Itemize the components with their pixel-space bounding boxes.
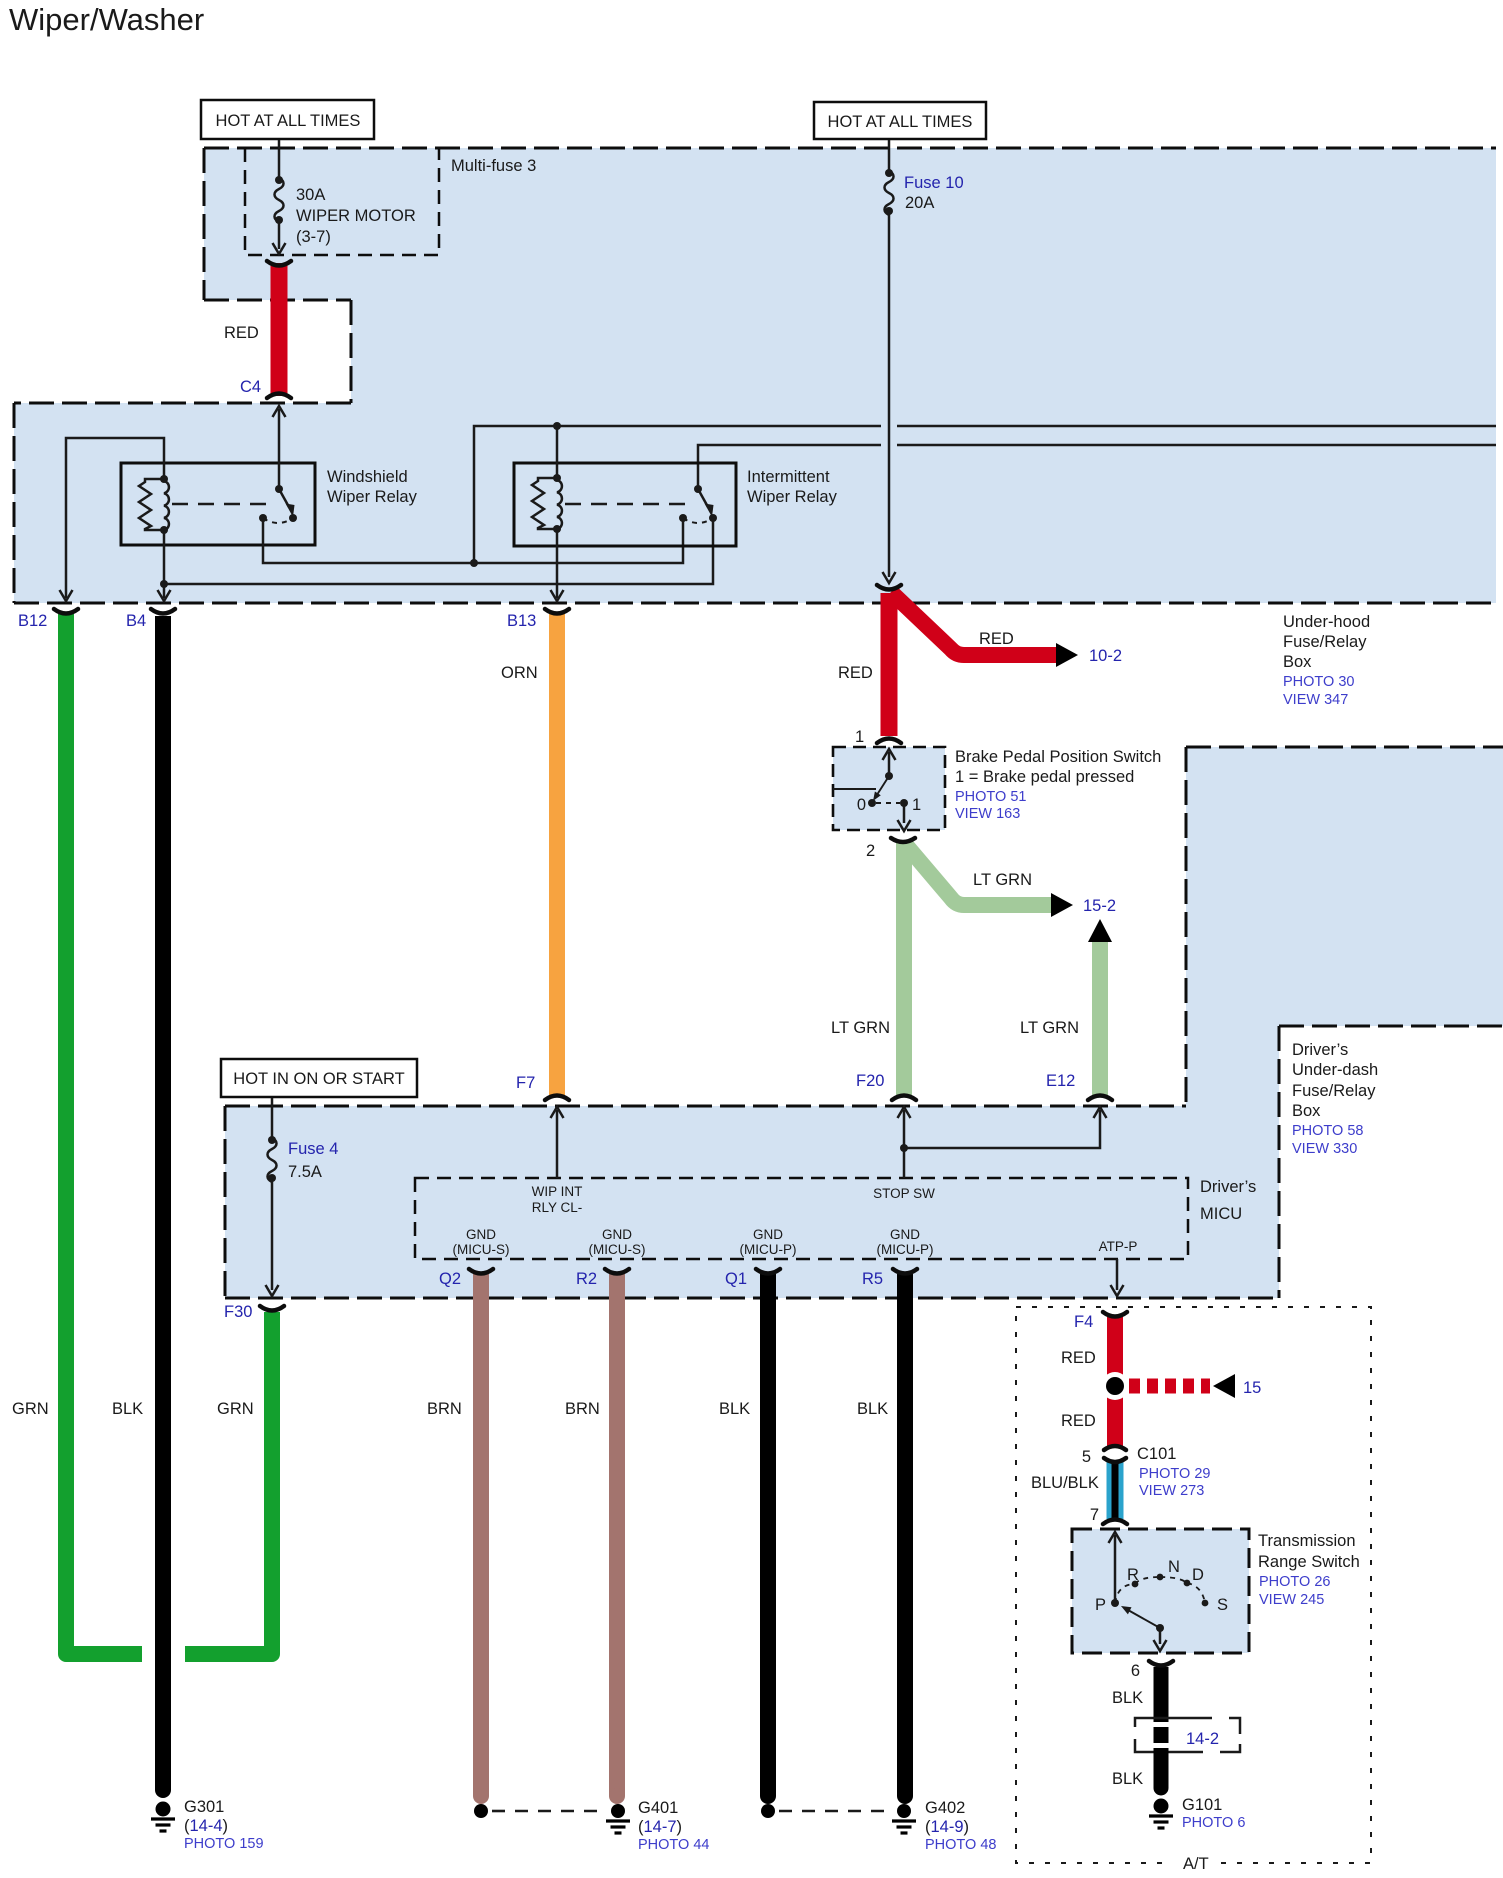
- svg-text:B4: B4: [126, 612, 146, 630]
- svg-text:R2: R2: [576, 1270, 597, 1288]
- svg-text:GND: GND: [890, 1227, 920, 1242]
- svg-text:S: S: [1217, 1596, 1228, 1614]
- svg-text:C4: C4: [240, 378, 261, 396]
- svg-text:C101: C101: [1137, 1445, 1176, 1463]
- svg-text:BLK: BLK: [857, 1400, 888, 1418]
- svg-text:PHOTO 48: PHOTO 48: [925, 1837, 996, 1853]
- svg-text:Wiper Relay: Wiper Relay: [327, 488, 418, 506]
- svg-text:20A: 20A: [905, 194, 934, 212]
- svg-text:HOT AT ALL TIMES: HOT AT ALL TIMES: [216, 112, 361, 130]
- svg-text:F30: F30: [224, 1303, 252, 1321]
- svg-text:F4: F4: [1074, 1313, 1093, 1331]
- svg-text:G301: G301: [184, 1798, 224, 1816]
- svg-text:7.5A: 7.5A: [288, 1163, 322, 1181]
- svg-text:PHOTO 159: PHOTO 159: [184, 1836, 264, 1852]
- svg-text:LT GRN: LT GRN: [831, 1019, 890, 1037]
- svg-text:HOT IN ON OR START: HOT IN ON OR START: [233, 1070, 404, 1088]
- svg-text:Range Switch: Range Switch: [1258, 1553, 1360, 1571]
- svg-text:Brake Pedal Position Switch: Brake Pedal Position Switch: [955, 748, 1161, 766]
- svg-text:WIPER MOTOR: WIPER MOTOR: [296, 207, 416, 225]
- svg-text:5: 5: [1082, 1448, 1091, 1466]
- svg-text:10-2: 10-2: [1089, 647, 1122, 665]
- svg-text:(MICU-P): (MICU-P): [740, 1242, 797, 1257]
- svg-text:GND: GND: [602, 1227, 632, 1242]
- svg-text:(14-9): (14-9): [925, 1818, 969, 1836]
- svg-text:STOP SW: STOP SW: [873, 1186, 935, 1201]
- svg-text:7: 7: [1090, 1506, 1099, 1524]
- svg-text:GND: GND: [466, 1227, 496, 1242]
- svg-text:GND: GND: [753, 1227, 783, 1242]
- svg-text:RED: RED: [1061, 1349, 1096, 1367]
- svg-text:1: 1: [855, 728, 864, 746]
- svg-text:(14-4): (14-4): [184, 1817, 228, 1835]
- svg-text:F7: F7: [516, 1074, 535, 1092]
- svg-text:PHOTO 30: PHOTO 30: [1283, 674, 1354, 690]
- svg-text:MICU: MICU: [1200, 1205, 1242, 1223]
- svg-text:ATP-P: ATP-P: [1099, 1239, 1138, 1254]
- svg-text:N: N: [1168, 1558, 1180, 1576]
- svg-text:VIEW 273: VIEW 273: [1139, 1483, 1204, 1499]
- svg-text:VIEW 330: VIEW 330: [1292, 1141, 1357, 1157]
- svg-text:Fuse 4: Fuse 4: [288, 1140, 338, 1158]
- svg-text:2: 2: [866, 842, 875, 860]
- svg-text:WIP INT: WIP INT: [532, 1184, 583, 1199]
- svg-text:HOT AT ALL TIMES: HOT AT ALL TIMES: [828, 113, 973, 131]
- svg-text:B13: B13: [507, 612, 536, 630]
- svg-text:BLK: BLK: [112, 1400, 143, 1418]
- svg-text:Transmission: Transmission: [1258, 1532, 1356, 1550]
- svg-text:G401: G401: [638, 1799, 678, 1817]
- svg-text:BLK: BLK: [1112, 1689, 1143, 1707]
- svg-text:6: 6: [1131, 1662, 1140, 1680]
- svg-text:LT GRN: LT GRN: [973, 871, 1032, 889]
- svg-text:Q1: Q1: [725, 1270, 747, 1288]
- svg-text:Box: Box: [1283, 653, 1312, 671]
- svg-text:Wiper Relay: Wiper Relay: [747, 488, 838, 506]
- svg-text:15: 15: [1243, 1379, 1261, 1397]
- svg-text:RED: RED: [979, 630, 1014, 648]
- svg-text:RED: RED: [1061, 1412, 1096, 1430]
- svg-text:PHOTO 44: PHOTO 44: [638, 1837, 709, 1853]
- svg-text:Fuse/Relay: Fuse/Relay: [1283, 633, 1367, 651]
- svg-text:15-2: 15-2: [1083, 897, 1116, 915]
- svg-text:Driver’s: Driver’s: [1200, 1178, 1256, 1196]
- svg-text:D: D: [1192, 1566, 1204, 1584]
- svg-text:Windshield: Windshield: [327, 468, 408, 486]
- svg-text:RED: RED: [224, 324, 259, 342]
- svg-text:A/T: A/T: [1183, 1855, 1209, 1873]
- svg-text:PHOTO 51: PHOTO 51: [955, 789, 1026, 805]
- svg-text:30A: 30A: [296, 186, 325, 204]
- svg-text:Fuse 10: Fuse 10: [904, 174, 964, 192]
- svg-text:(3-7): (3-7): [296, 228, 331, 246]
- svg-text:PHOTO 29: PHOTO 29: [1139, 1466, 1210, 1482]
- svg-text:P: P: [1095, 1596, 1106, 1614]
- svg-text:Multi-fuse 3: Multi-fuse 3: [451, 157, 536, 175]
- svg-text:B12: B12: [18, 612, 47, 630]
- svg-text:BRN: BRN: [427, 1400, 462, 1418]
- svg-text:1: 1: [912, 796, 921, 814]
- svg-text:Under-dash: Under-dash: [1292, 1061, 1378, 1079]
- svg-text:E12: E12: [1046, 1072, 1075, 1090]
- svg-text:BLK: BLK: [719, 1400, 750, 1418]
- svg-text:1 = Brake pedal pressed: 1 = Brake pedal pressed: [955, 768, 1134, 786]
- svg-text:BLU/BLK: BLU/BLK: [1031, 1474, 1099, 1492]
- svg-text:(14-7): (14-7): [638, 1818, 682, 1836]
- svg-text:R: R: [1127, 1566, 1139, 1584]
- svg-text:PHOTO 26: PHOTO 26: [1259, 1574, 1330, 1590]
- svg-text:LT GRN: LT GRN: [1020, 1019, 1079, 1037]
- svg-text:R5: R5: [862, 1270, 883, 1288]
- svg-text:G402: G402: [925, 1799, 965, 1817]
- svg-text:BRN: BRN: [565, 1400, 600, 1418]
- svg-text:F20: F20: [856, 1072, 884, 1090]
- svg-text:Wiper/Washer: Wiper/Washer: [9, 2, 204, 37]
- svg-text:RLY CL-: RLY CL-: [532, 1200, 583, 1215]
- svg-text:G101: G101: [1182, 1796, 1222, 1814]
- svg-text:BLK: BLK: [1112, 1770, 1143, 1788]
- svg-text:14-2: 14-2: [1186, 1730, 1219, 1748]
- svg-text:VIEW 245: VIEW 245: [1259, 1592, 1324, 1608]
- svg-text:(MICU-P): (MICU-P): [877, 1242, 934, 1257]
- svg-text:0: 0: [857, 796, 866, 814]
- svg-text:(MICU-S): (MICU-S): [453, 1242, 510, 1257]
- svg-text:Q2: Q2: [439, 1270, 461, 1288]
- svg-text:PHOTO 58: PHOTO 58: [1292, 1123, 1363, 1139]
- svg-text:VIEW 163: VIEW 163: [955, 806, 1020, 822]
- svg-text:GRN: GRN: [217, 1400, 254, 1418]
- svg-text:Intermittent: Intermittent: [747, 468, 830, 486]
- svg-text:PHOTO 6: PHOTO 6: [1182, 1815, 1245, 1831]
- svg-text:Box: Box: [1292, 1102, 1321, 1120]
- svg-text:GRN: GRN: [12, 1400, 49, 1418]
- svg-text:Driver’s: Driver’s: [1292, 1041, 1348, 1059]
- svg-text:Under-hood: Under-hood: [1283, 613, 1370, 631]
- svg-text:Fuse/Relay: Fuse/Relay: [1292, 1082, 1376, 1100]
- svg-text:(MICU-S): (MICU-S): [589, 1242, 646, 1257]
- svg-text:ORN: ORN: [501, 664, 538, 682]
- svg-text:RED: RED: [838, 664, 873, 682]
- svg-text:VIEW 347: VIEW 347: [1283, 692, 1348, 708]
